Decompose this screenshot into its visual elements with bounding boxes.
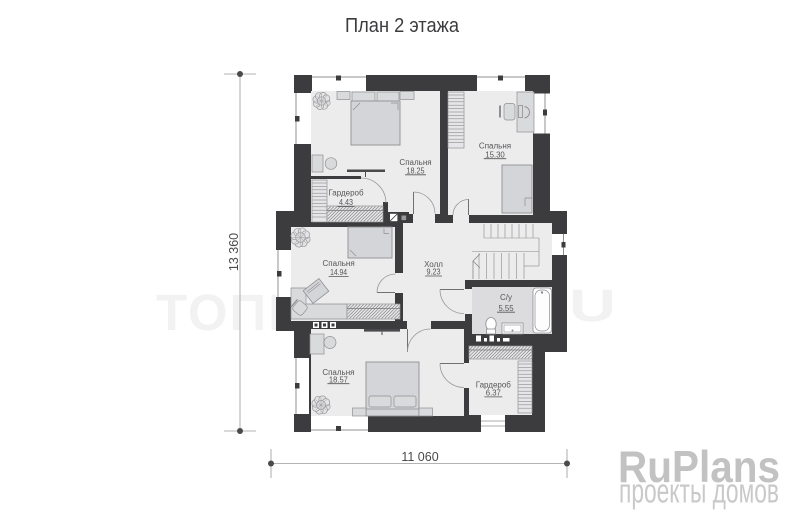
svg-text:5.55: 5.55 (499, 304, 515, 313)
svg-text:U: U (569, 280, 616, 331)
svg-text:9.23: 9.23 (427, 268, 441, 277)
svg-text:15.30: 15.30 (485, 150, 505, 159)
svg-text:18.57: 18.57 (329, 375, 349, 384)
svg-text:Спальня: Спальня (479, 141, 511, 150)
svg-text:План 2 этажа: План 2 этажа (345, 15, 460, 37)
svg-text:Спальня: Спальня (323, 259, 355, 268)
svg-text:18.25: 18.25 (407, 166, 425, 175)
svg-text:Гардероб: Гардероб (328, 189, 364, 198)
svg-text:6.37: 6.37 (486, 389, 502, 398)
svg-text:11 060: 11 060 (401, 450, 438, 464)
svg-text:проекты домов: проекты домов (619, 473, 779, 511)
svg-text:С/у: С/у (500, 293, 512, 302)
svg-text:4.43: 4.43 (339, 198, 353, 207)
svg-text:14.94: 14.94 (330, 268, 347, 277)
svg-text:13 360: 13 360 (227, 233, 241, 271)
